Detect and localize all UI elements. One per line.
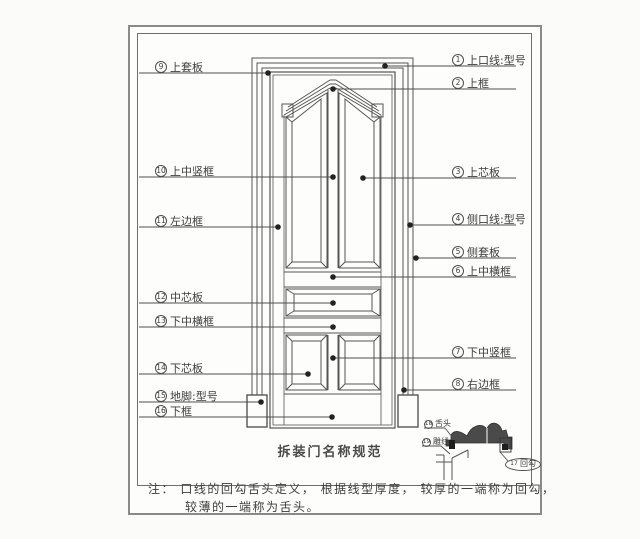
- label-middle-panel: 12 中芯板: [155, 290, 203, 304]
- note-line-2: 较薄的一端称为舌头。: [185, 498, 320, 515]
- door-leaf-arch-head: [282, 80, 383, 117]
- door-panels: [284, 90, 381, 425]
- label-text: 上芯板: [467, 167, 500, 178]
- label-text: 舌头: [435, 420, 451, 428]
- stile-inner-edges: [284, 115, 381, 425]
- label-bottom-rail: 16 下框: [155, 404, 192, 418]
- label-upper-mid-rail: 6 上中横框: [452, 264, 511, 278]
- label-number: 10: [155, 165, 167, 177]
- label-text: 回勾: [520, 460, 536, 468]
- label-text: 下芯板: [170, 363, 203, 374]
- label-number: 17: [510, 460, 518, 469]
- door-nomenclature-diagram: 9 上套板 10 上中竖框 11 左边框 12 中芯板 13 下中横框 14 下…: [0, 0, 640, 539]
- label-top-casing-line: 1 上口线:型号: [452, 53, 526, 67]
- wall-corner-lines: [436, 450, 468, 480]
- label-text: 上中竖框: [170, 166, 214, 177]
- label-side-jamb-board: 5 侧套板: [452, 245, 500, 259]
- diagram-title: 拆装门名称规范: [250, 441, 410, 460]
- label-number: 14: [155, 362, 167, 374]
- label-number: 3: [452, 166, 464, 178]
- lower-mid-mullion: [328, 335, 338, 390]
- label-right-stile: 8 右边框: [452, 377, 500, 391]
- label-number: 1: [452, 54, 464, 66]
- label-number: 19: [422, 438, 431, 447]
- label-lower-panel: 14 下芯板: [155, 361, 203, 375]
- return-hook-ellipse: 17 回勾: [505, 458, 541, 471]
- label-text: 侧套板: [467, 247, 500, 258]
- label-text: 中芯板: [170, 292, 203, 303]
- label-text: 上中横框: [467, 266, 511, 277]
- label-upper-mid-mullion: 10 上中竖框: [155, 164, 214, 178]
- label-text: 侧口线:型号: [467, 214, 526, 225]
- label-text: 雕线: [433, 438, 449, 446]
- label-tongue: 18 舌头: [424, 419, 451, 429]
- label-number: 9: [155, 61, 167, 73]
- left-foot-block: [247, 395, 267, 427]
- label-number: 18: [424, 420, 433, 429]
- label-return-hook: 17 回勾: [505, 459, 541, 469]
- label-text: 上套板: [170, 62, 203, 73]
- label-floor-foot: 15 地脚:型号: [155, 389, 218, 403]
- label-top-rail: 2 上框: [452, 76, 489, 90]
- label-number: 4: [452, 213, 464, 225]
- label-upper-panel: 3 上芯板: [452, 165, 500, 179]
- label-number: 2: [452, 77, 464, 89]
- label-lower-mid-rail: 13 下中横框: [155, 314, 214, 328]
- label-number: 12: [155, 291, 167, 303]
- label-number: 7: [452, 346, 464, 358]
- label-number: 16: [155, 405, 167, 417]
- label-text: 下中横框: [170, 316, 214, 327]
- tongue-end-block: [449, 440, 455, 449]
- label-lower-mid-mullion: 7 下中竖框: [452, 345, 511, 359]
- door-leaf: [270, 72, 395, 428]
- hook-end-block: [502, 444, 508, 450]
- label-number: 15: [155, 390, 167, 402]
- note-line-1: 注： 口线的回勾舌头定义， 根据线型厚度， 较厚的一端称为回勾，: [148, 480, 555, 497]
- right-foot-block: [398, 395, 418, 427]
- label-text: 下框: [170, 406, 192, 417]
- label-number: 8: [452, 378, 464, 390]
- casing-profile-detail: [422, 423, 512, 480]
- label-text: 上框: [467, 78, 489, 89]
- label-text: 右边框: [467, 379, 500, 390]
- label-number: 11: [155, 215, 167, 227]
- label-left-stile: 11 左边框: [155, 214, 203, 228]
- label-text: 左边框: [170, 216, 203, 227]
- label-carved-line: 19 雕线: [422, 437, 449, 447]
- label-number: 13: [155, 315, 167, 327]
- label-text: 下中竖框: [467, 347, 511, 358]
- label-side-casing-line: 4 侧口线:型号: [452, 212, 526, 226]
- label-number: 5: [452, 246, 464, 258]
- label-upper-jamb-board: 9 上套板: [155, 60, 203, 74]
- label-number: 6: [452, 265, 464, 277]
- label-text: 上口线:型号: [467, 55, 526, 66]
- label-text: 地脚:型号: [170, 391, 218, 402]
